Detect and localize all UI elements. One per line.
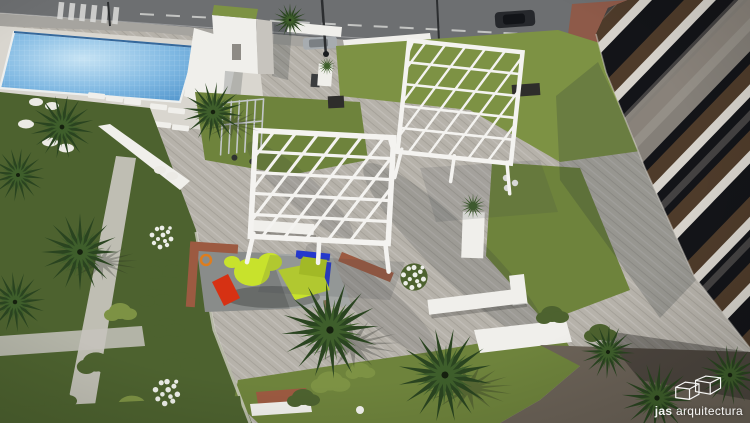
architectural-render: jas arquitectura bbox=[0, 0, 750, 423]
brand-name-bold: jas bbox=[655, 404, 673, 418]
watermark: jas arquitectura bbox=[655, 375, 743, 417]
aerial-view-canvas bbox=[0, 0, 750, 423]
brand-name: jas arquitectura bbox=[655, 405, 743, 417]
brand-name-rest: arquitectura bbox=[672, 404, 743, 418]
vignette-overlay bbox=[0, 0, 750, 423]
brand-logo-icon bbox=[674, 375, 724, 403]
